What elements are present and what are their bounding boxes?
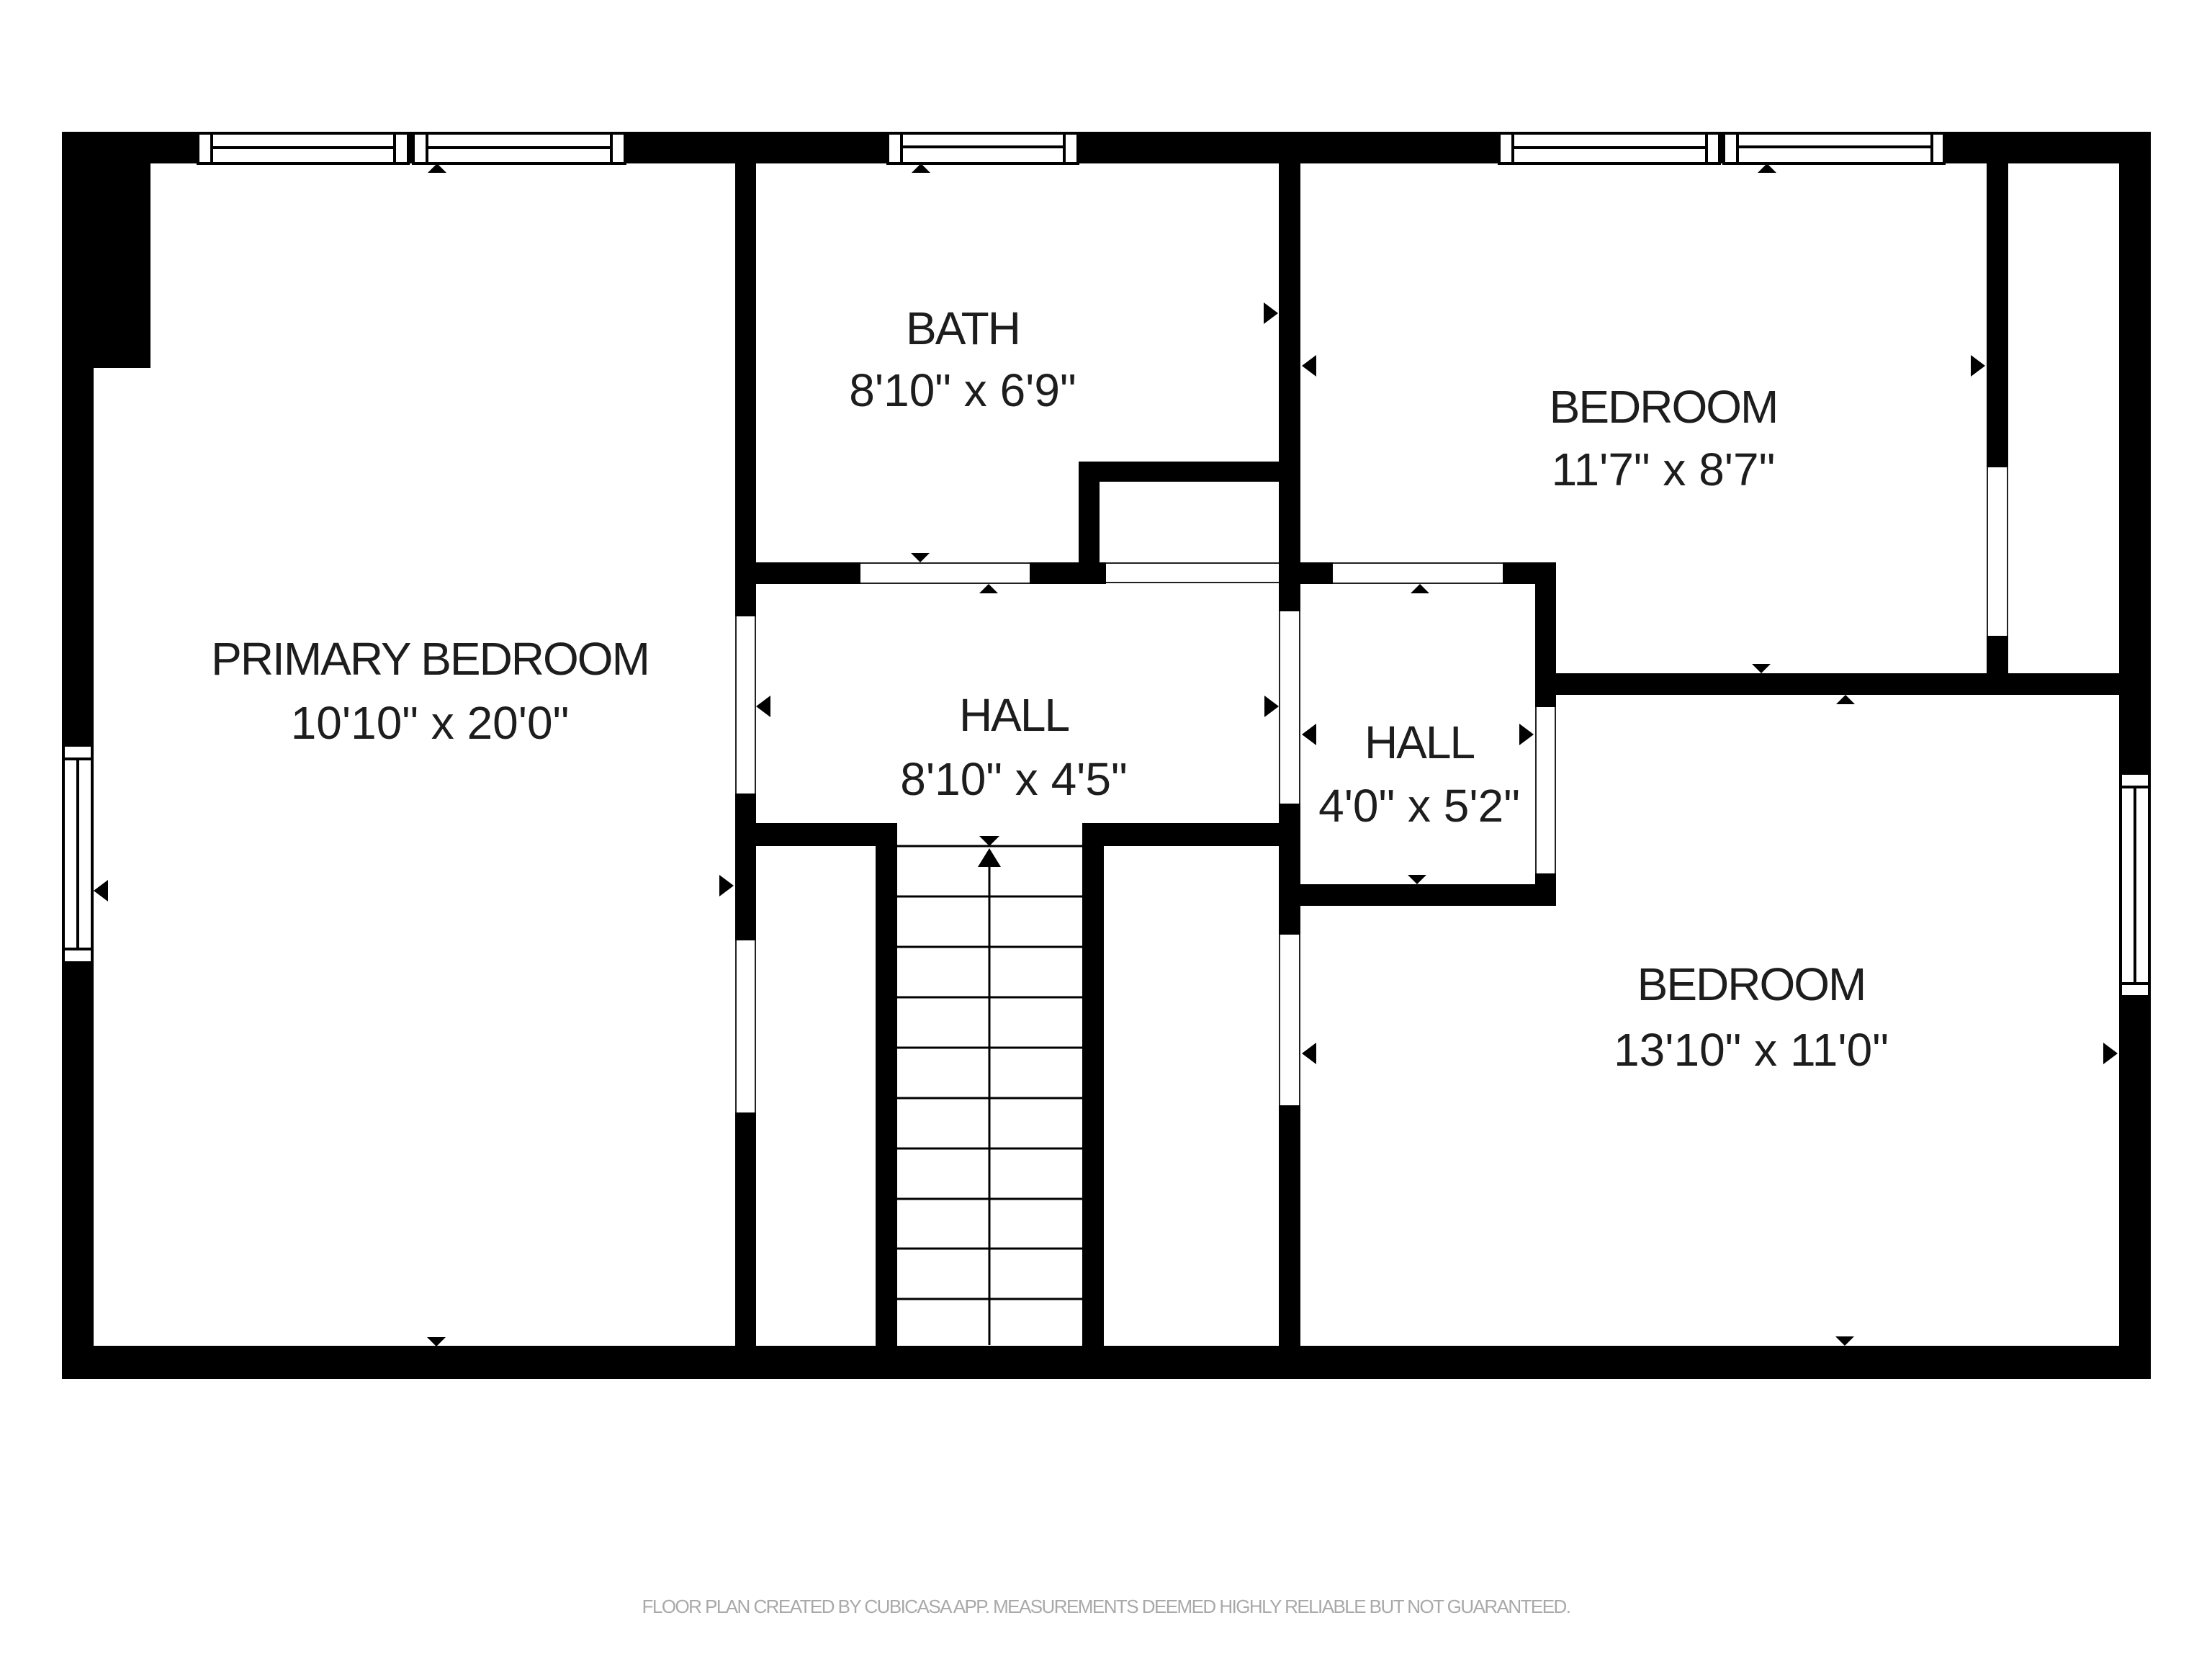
svg-text:BATH: BATH — [906, 302, 1020, 354]
svg-text:HALL: HALL — [1364, 716, 1475, 768]
svg-text:11'7" x 8'7": 11'7" x 8'7" — [1552, 444, 1776, 495]
svg-text:FLOOR PLAN CREATED BY CUBICASA: FLOOR PLAN CREATED BY CUBICASA APP. MEAS… — [642, 1596, 1570, 1617]
svg-text:8'10" x 6'9": 8'10" x 6'9" — [849, 364, 1076, 416]
svg-text:BEDROOM: BEDROOM — [1637, 958, 1866, 1010]
svg-text:BEDROOM: BEDROOM — [1550, 381, 1778, 433]
svg-text:8'10" x 4'5": 8'10" x 4'5" — [900, 753, 1127, 805]
svg-text:HALL: HALL — [959, 689, 1069, 741]
svg-text:PRIMARY BEDROOM: PRIMARY BEDROOM — [211, 633, 649, 685]
svg-text:4'0" x 5'2": 4'0" x 5'2" — [1318, 780, 1520, 832]
svg-text:13'10" x 11'0": 13'10" x 11'0" — [1614, 1024, 1889, 1076]
svg-text:10'10" x 20'0": 10'10" x 20'0" — [291, 697, 570, 749]
